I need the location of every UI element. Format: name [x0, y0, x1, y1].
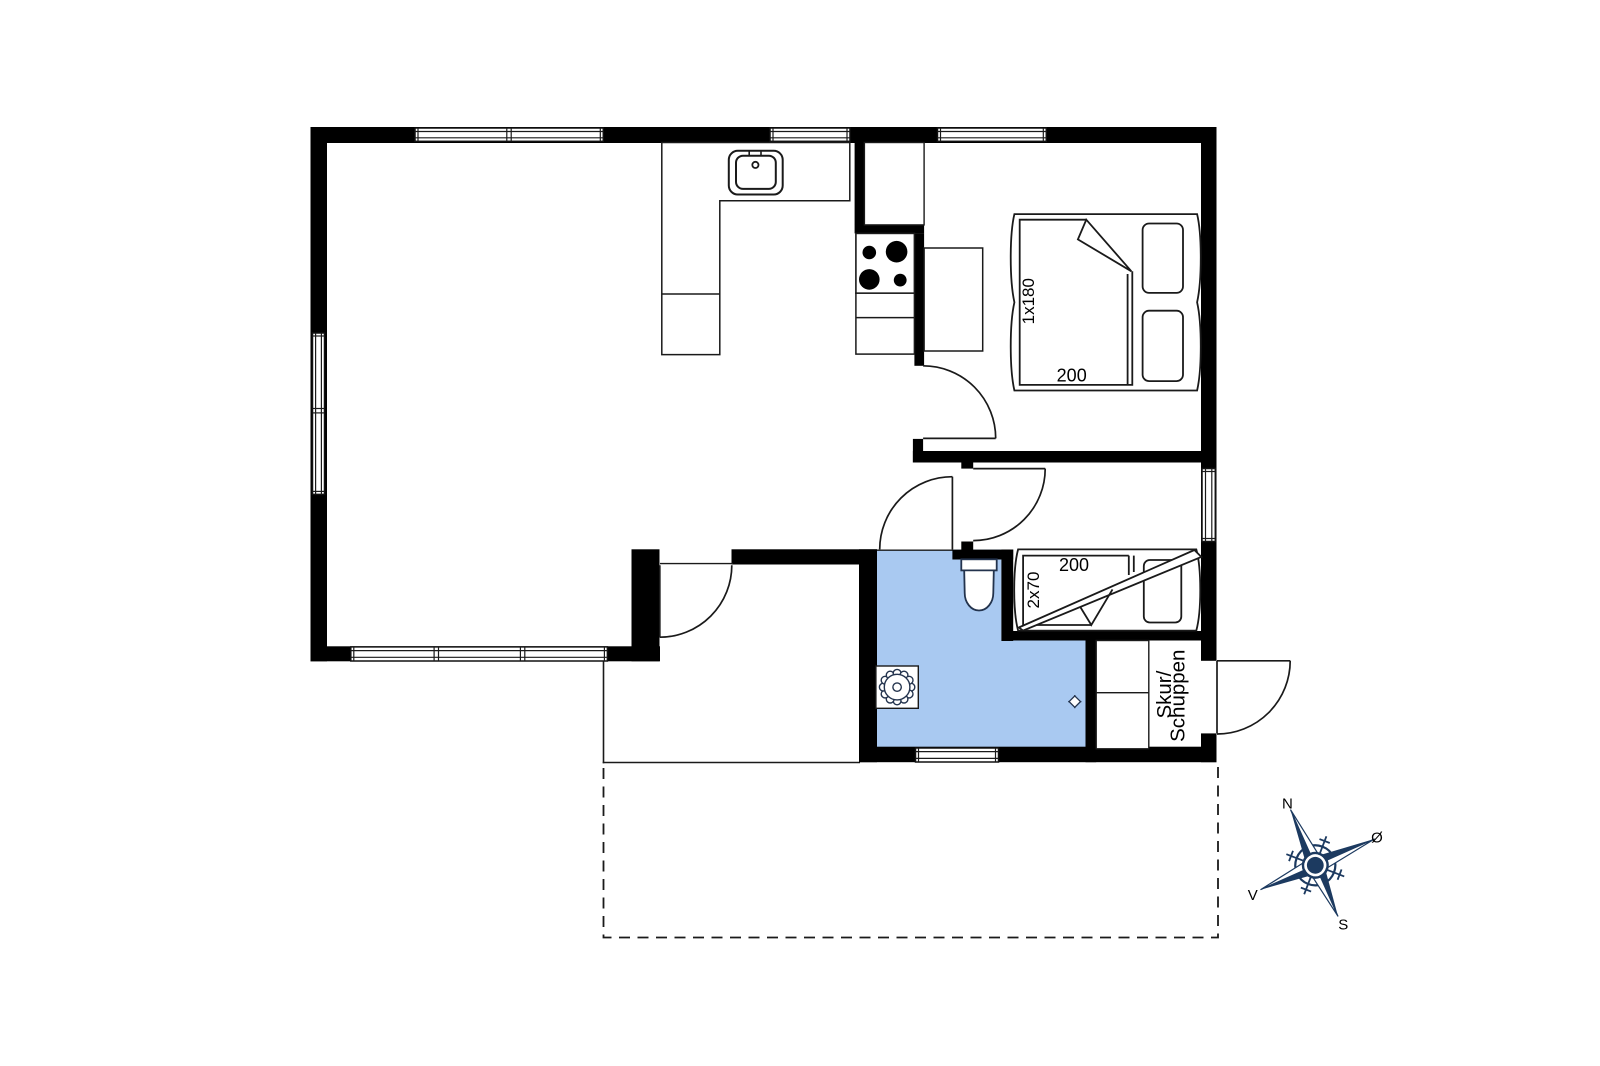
svg-text:200: 200	[1057, 365, 1087, 385]
svg-text:V: V	[1248, 887, 1258, 904]
svg-text:200: 200	[1059, 555, 1089, 575]
svg-text:2x70: 2x70	[1024, 572, 1043, 609]
svg-text:S: S	[1338, 916, 1348, 933]
svg-text:Schuppen: Schuppen	[1166, 650, 1189, 742]
svg-text:Ø: Ø	[1371, 829, 1383, 846]
svg-text:N: N	[1282, 796, 1293, 813]
svg-text:1x180: 1x180	[1019, 278, 1038, 324]
